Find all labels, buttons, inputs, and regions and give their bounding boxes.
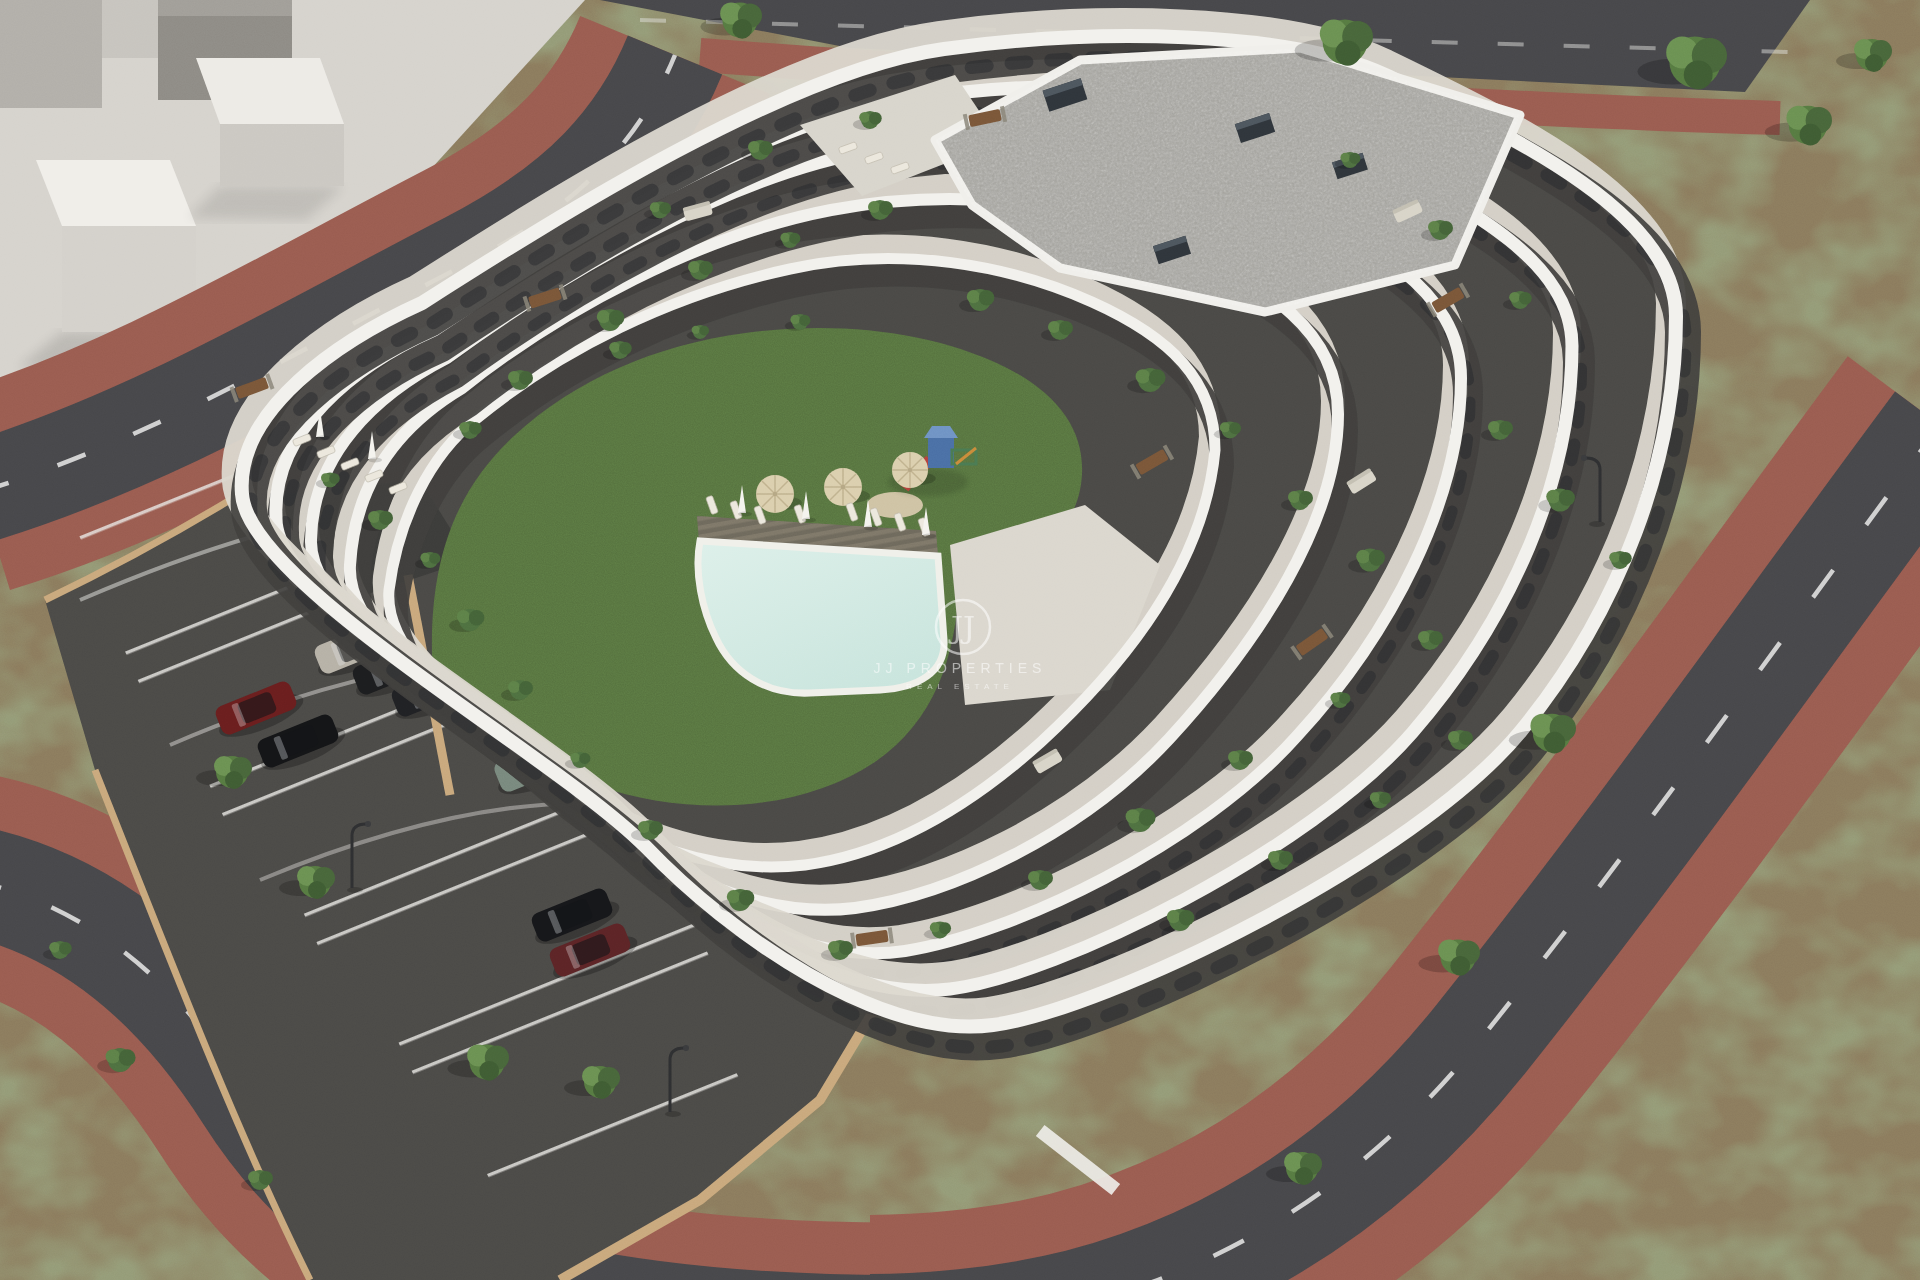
render-canvas: JJ JJ PROPERTIES REAL ESTATE — [0, 0, 1920, 1280]
watermark-monogram: JJ — [948, 610, 975, 645]
aerial-property-render: JJ JJ PROPERTIES REAL ESTATE — [0, 0, 1920, 1280]
watermark-title: JJ PROPERTIES — [874, 660, 1047, 676]
watermark-subtitle: REAL ESTATE — [906, 682, 1014, 691]
